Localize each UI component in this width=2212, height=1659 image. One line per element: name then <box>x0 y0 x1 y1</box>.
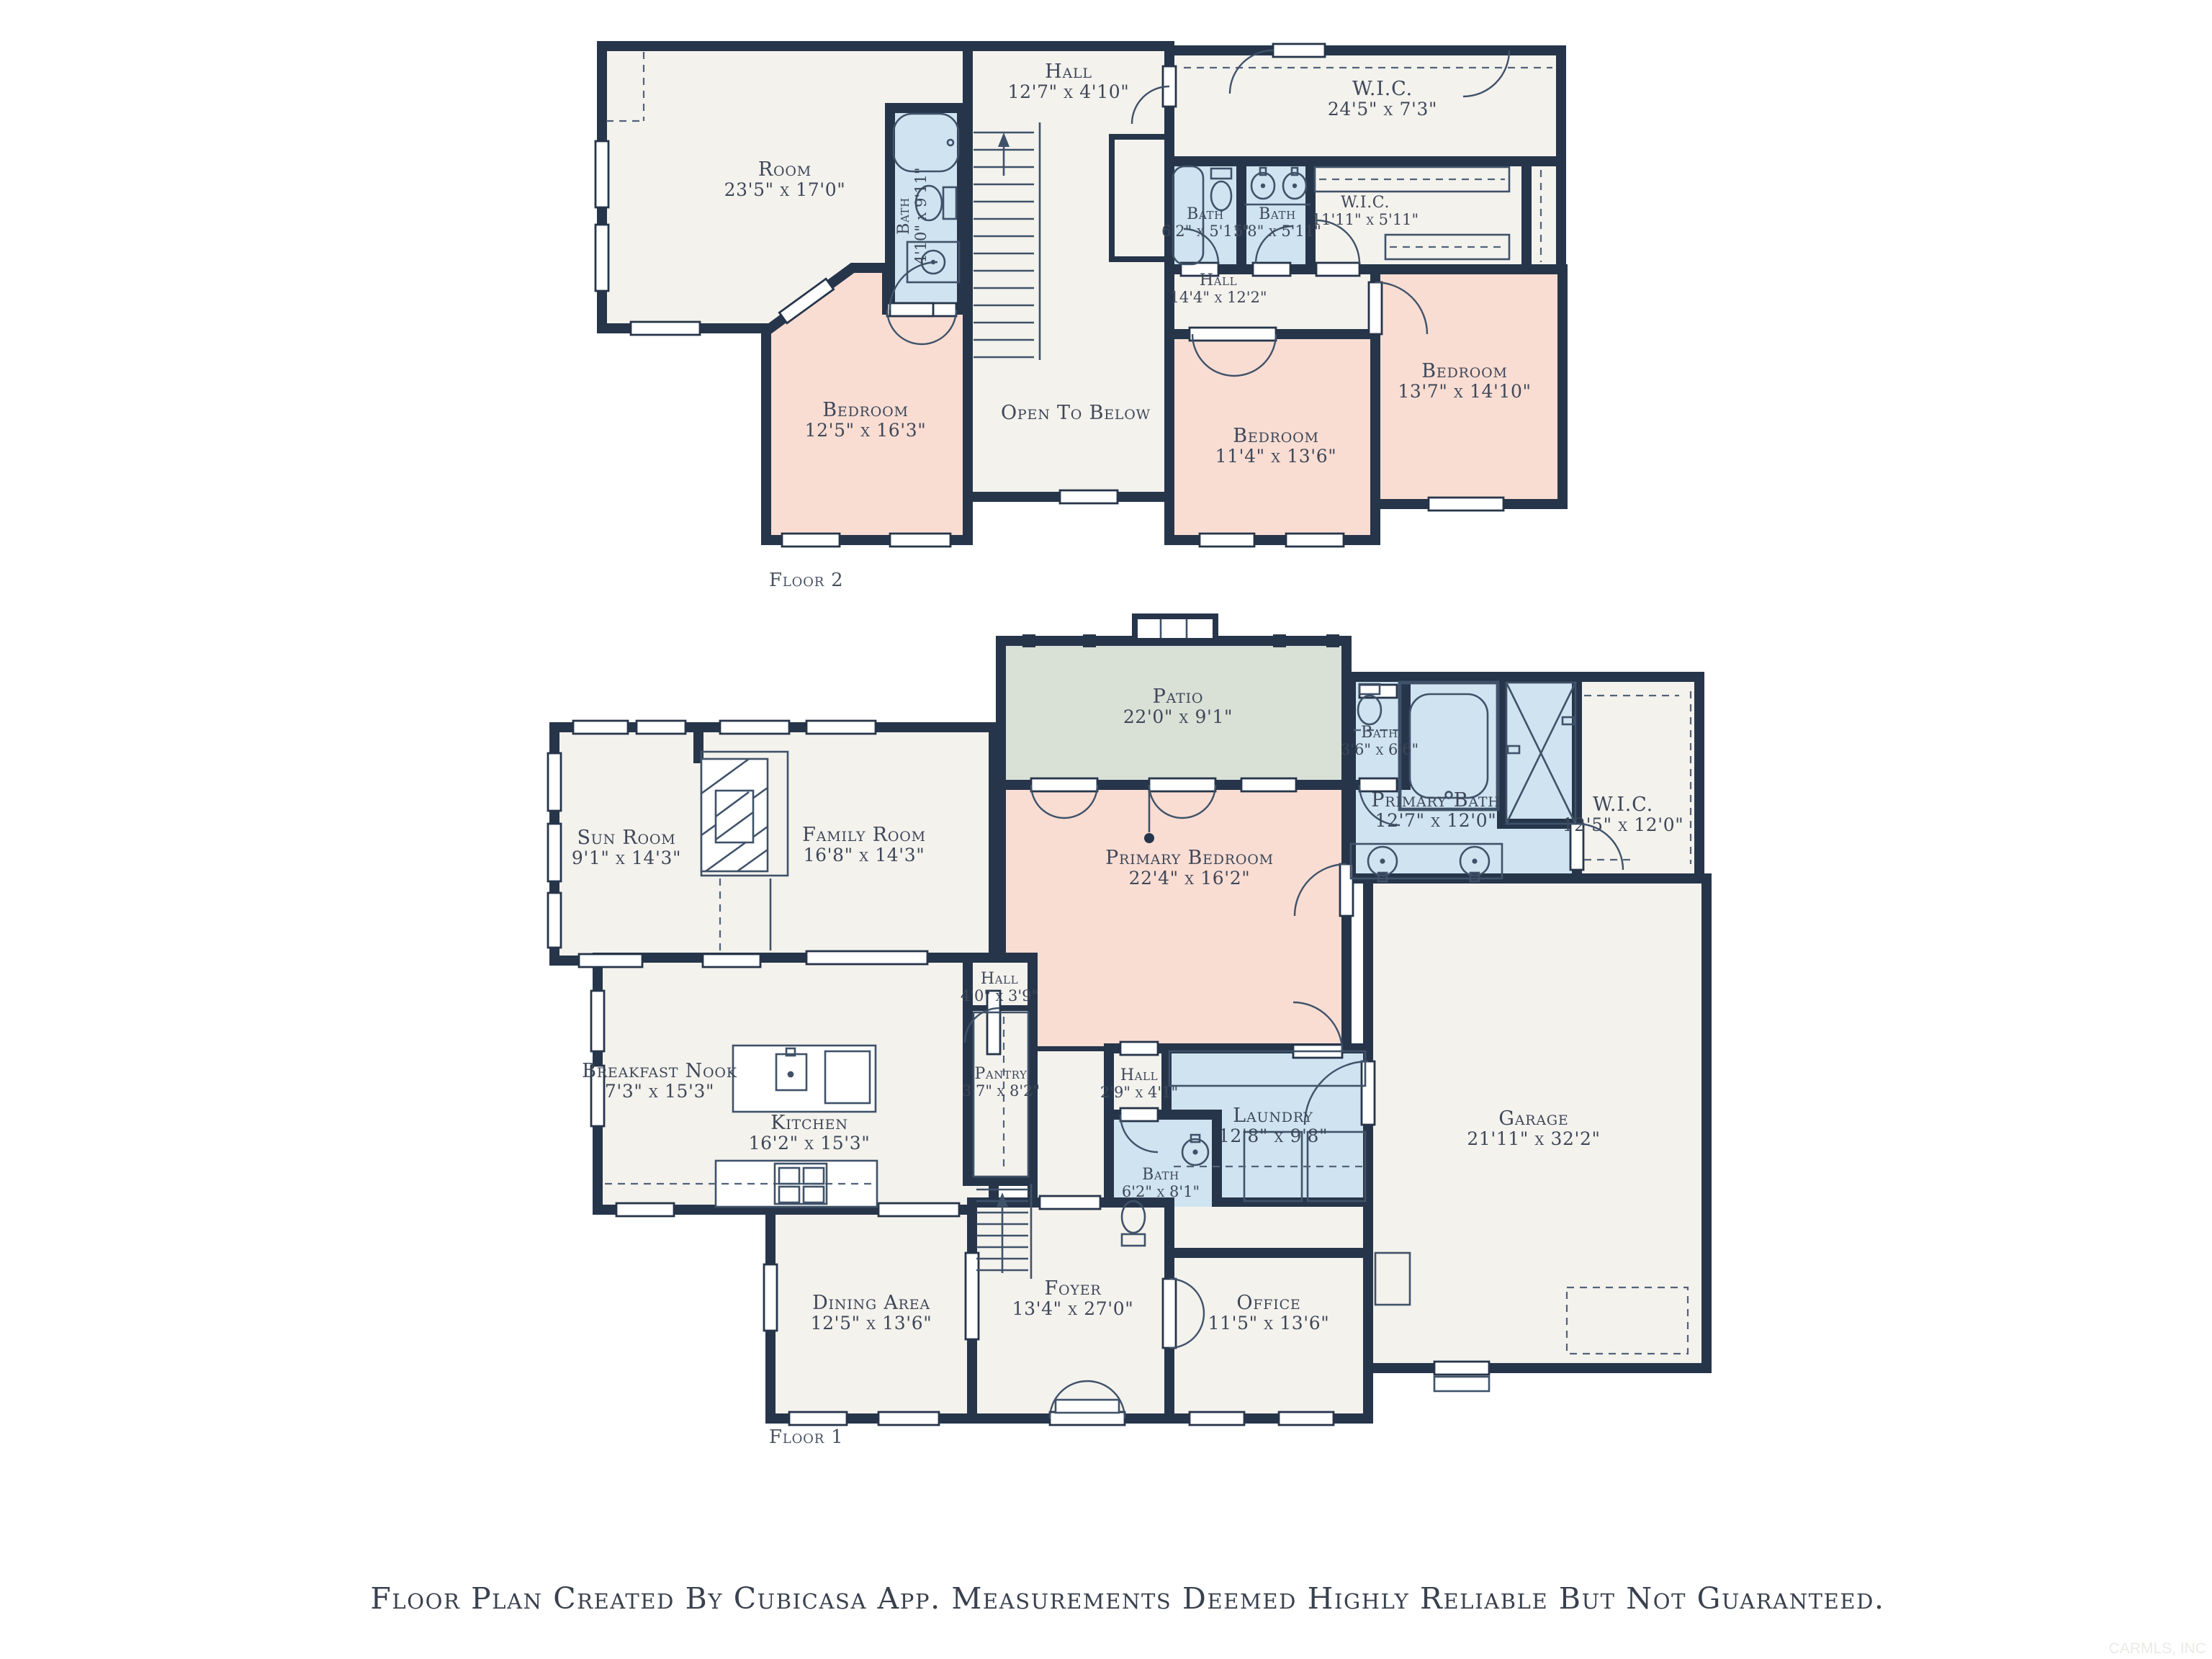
room-label: Bedroom <box>822 399 908 421</box>
entry-door-slab <box>1056 1400 1119 1413</box>
room-dims: 12'5" x 13'6" <box>811 1313 932 1334</box>
room-dims: 21'11" x 32'2" <box>1467 1128 1600 1149</box>
room-f2-closet-strip <box>1527 161 1561 269</box>
door-gap <box>1369 282 1382 334</box>
room-label: Breakfast Nook <box>582 1060 737 1082</box>
room-dims: 12'7" x 12'0" <box>1375 810 1497 831</box>
room-dims: 22'0" x 9'1" <box>1123 706 1233 727</box>
room-dims: 23'5" x 17'0" <box>724 179 846 200</box>
window <box>782 534 840 547</box>
room-label: Bath <box>1259 205 1296 223</box>
window <box>548 824 561 881</box>
room-label: Patio <box>1153 685 1204 708</box>
window <box>1190 1412 1244 1425</box>
room-label: Open To Below <box>1001 402 1151 424</box>
door-gap <box>1163 1279 1176 1348</box>
opening <box>1040 1196 1100 1209</box>
door-gap <box>1120 1042 1158 1055</box>
window <box>595 141 608 207</box>
floor2-rooms <box>602 46 1563 540</box>
room-dims: 12'5" x 12'0" <box>1563 814 1684 835</box>
room-dims: 3'6" x 6'6" <box>1341 741 1419 758</box>
room-label: Primary Bedroom <box>1105 847 1274 869</box>
window <box>890 534 950 547</box>
floor-1-plan: Patio 22'0" x 9'1" Bath 3'6" x 6'6" Prim… <box>548 616 1707 1448</box>
floor-2-plan: Room 23'5" x 17'0" Hall 12'7" x 4'10" W.… <box>595 44 1563 591</box>
room-dims: 16'2" x 15'3" <box>749 1133 871 1154</box>
room-dims: 13'4" x 27'0" <box>1012 1298 1134 1319</box>
door-gap <box>1316 263 1359 276</box>
door-gap <box>1362 1061 1375 1125</box>
room-label: Dining Area <box>812 1292 930 1314</box>
room-label: Kitchen <box>770 1112 848 1134</box>
window <box>1429 498 1503 511</box>
window <box>703 954 760 967</box>
room-dims: 11'11" x 5'11" <box>1312 211 1419 228</box>
room-f1-wic <box>1577 677 1699 878</box>
room-label: Laundry <box>1233 1105 1313 1127</box>
room-label: Bedroom <box>1233 425 1318 447</box>
window <box>573 721 628 734</box>
room-dims: 4'10" x 9'11" <box>912 167 930 264</box>
window <box>616 1203 674 1216</box>
room-dims: 12'5" x 16'3" <box>805 420 927 441</box>
opening <box>806 951 927 964</box>
room-label: Foyer <box>1044 1277 1101 1300</box>
window <box>789 1412 847 1425</box>
room-label: Primary Bath <box>1371 789 1500 811</box>
window <box>1060 490 1118 503</box>
door-gap <box>890 303 933 316</box>
room-dims: 24'5" x 7'3" <box>1328 99 1437 120</box>
window <box>1279 1412 1334 1425</box>
window <box>579 954 642 967</box>
window <box>720 721 789 734</box>
room-label: Bath <box>1142 1166 1179 1184</box>
room-dims: 9'1" x 14'3" <box>572 848 681 868</box>
room-dims: 5'8" x 5'11" <box>1233 222 1321 240</box>
floor-1-caption: Floor 1 <box>769 1426 843 1448</box>
room-dims: 11'5" x 13'6" <box>1208 1313 1330 1334</box>
room-label: Hall <box>981 970 1018 988</box>
window <box>548 893 561 948</box>
room-dims: 14'4" x 12'2" <box>1169 289 1267 306</box>
room-label: Hall <box>1200 271 1237 289</box>
window <box>1200 534 1254 547</box>
floor-plan-canvas: Room 23'5" x 17'0" Hall 12'7" x 4'10" W.… <box>0 0 2212 1659</box>
room-label: Hall <box>1120 1066 1158 1084</box>
room-dims: 6'2" x 8'1" <box>1122 1183 1200 1200</box>
room-label: Bath <box>1187 205 1224 223</box>
floor-2-caption: Floor 2 <box>769 570 843 591</box>
room-label: Bedroom <box>1421 360 1507 382</box>
room-label: Family Room <box>802 824 926 846</box>
room-label: Hall <box>1045 60 1092 83</box>
watermark: CARMLS, INC <box>2109 1640 2206 1657</box>
window <box>631 322 700 335</box>
kitchen-island <box>733 1046 876 1112</box>
room-dims: 13'7" x 14'10" <box>1398 381 1531 402</box>
window <box>878 1412 939 1425</box>
window <box>595 225 608 291</box>
room-label: Bath <box>1361 724 1398 742</box>
window <box>806 721 876 734</box>
room-label: W.I.C. <box>1352 78 1413 100</box>
room-label: Sun Room <box>577 827 675 849</box>
room-label: Bath <box>895 197 913 235</box>
room-dims: 12'8" x 9'8" <box>1218 1125 1328 1146</box>
window <box>591 991 604 1051</box>
window <box>1286 534 1344 547</box>
door-gap <box>1031 778 1097 791</box>
room-label: Garage <box>1498 1107 1568 1130</box>
room-dims: 2'9" x 4'1" <box>1100 1084 1178 1101</box>
room-label: Office <box>1236 1292 1300 1314</box>
room-label: W.I.C. <box>1593 793 1653 816</box>
door-gap <box>1190 328 1276 341</box>
patio-steps <box>1135 616 1215 641</box>
door-gap <box>1149 778 1215 791</box>
room-label: Room <box>758 158 811 181</box>
floor-plan-page: Room 23'5" x 17'0" Hall 12'7" x 4'10" W.… <box>0 0 2212 1659</box>
door-gap <box>1273 44 1325 57</box>
opening <box>966 1253 979 1339</box>
room-dims: 12'7" x 4'10" <box>1008 81 1130 102</box>
window <box>637 721 685 734</box>
room-dims: 3'7" x 8'2" <box>962 1082 1040 1100</box>
room-dims: 11'4" x 13'6" <box>1215 446 1337 467</box>
window <box>1241 778 1296 791</box>
room-f1-primary-bedroom <box>1001 785 1346 1051</box>
room-f1-hall-corridor <box>1033 1051 1109 1207</box>
window <box>764 1264 777 1331</box>
room-f1-rear-corridor <box>1166 1207 1368 1253</box>
room-label: Pantry <box>974 1065 1028 1083</box>
footer-disclaimer: Floor Plan Created By Cubicasa App. Meas… <box>370 1581 1884 1616</box>
door-gap <box>1120 1108 1158 1121</box>
window <box>548 753 561 811</box>
room-dims: 16'8" x 14'3" <box>804 845 925 866</box>
room-dims: 22'4" x 16'2" <box>1129 868 1251 889</box>
room-f1-office <box>1169 1253 1368 1419</box>
opening <box>878 1203 959 1216</box>
room-dims: 4'0" x 3'9" <box>961 987 1038 1004</box>
door-gap <box>1253 263 1290 276</box>
room-dims: 7'3" x 15'3" <box>605 1081 714 1102</box>
room-label: W.I.C. <box>1341 194 1390 212</box>
entry-door-gap <box>1050 1412 1125 1425</box>
door-gap <box>1434 1362 1489 1375</box>
